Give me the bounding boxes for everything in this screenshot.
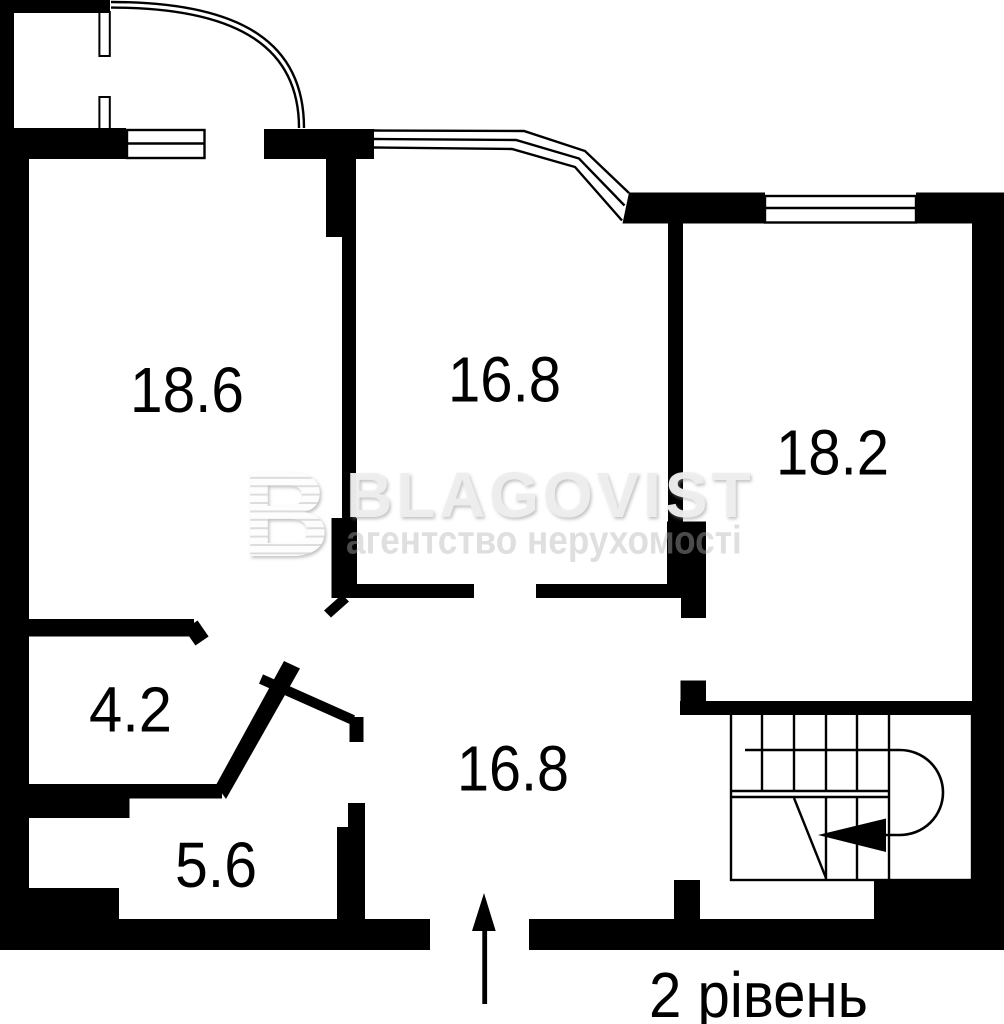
svg-text:16.8: 16.8 <box>457 733 569 805</box>
svg-text:агентство нерухомості: агентство нерухомості <box>346 517 742 562</box>
svg-text:18.6: 18.6 <box>130 354 244 426</box>
svg-text:B: B <box>242 446 330 582</box>
svg-text:5.6: 5.6 <box>175 829 257 901</box>
svg-text:18.2: 18.2 <box>776 417 889 489</box>
svg-text:16.8: 16.8 <box>448 344 561 416</box>
svg-text:4.2: 4.2 <box>89 674 172 746</box>
svg-text:2 рівень: 2 рівень <box>649 959 868 1024</box>
